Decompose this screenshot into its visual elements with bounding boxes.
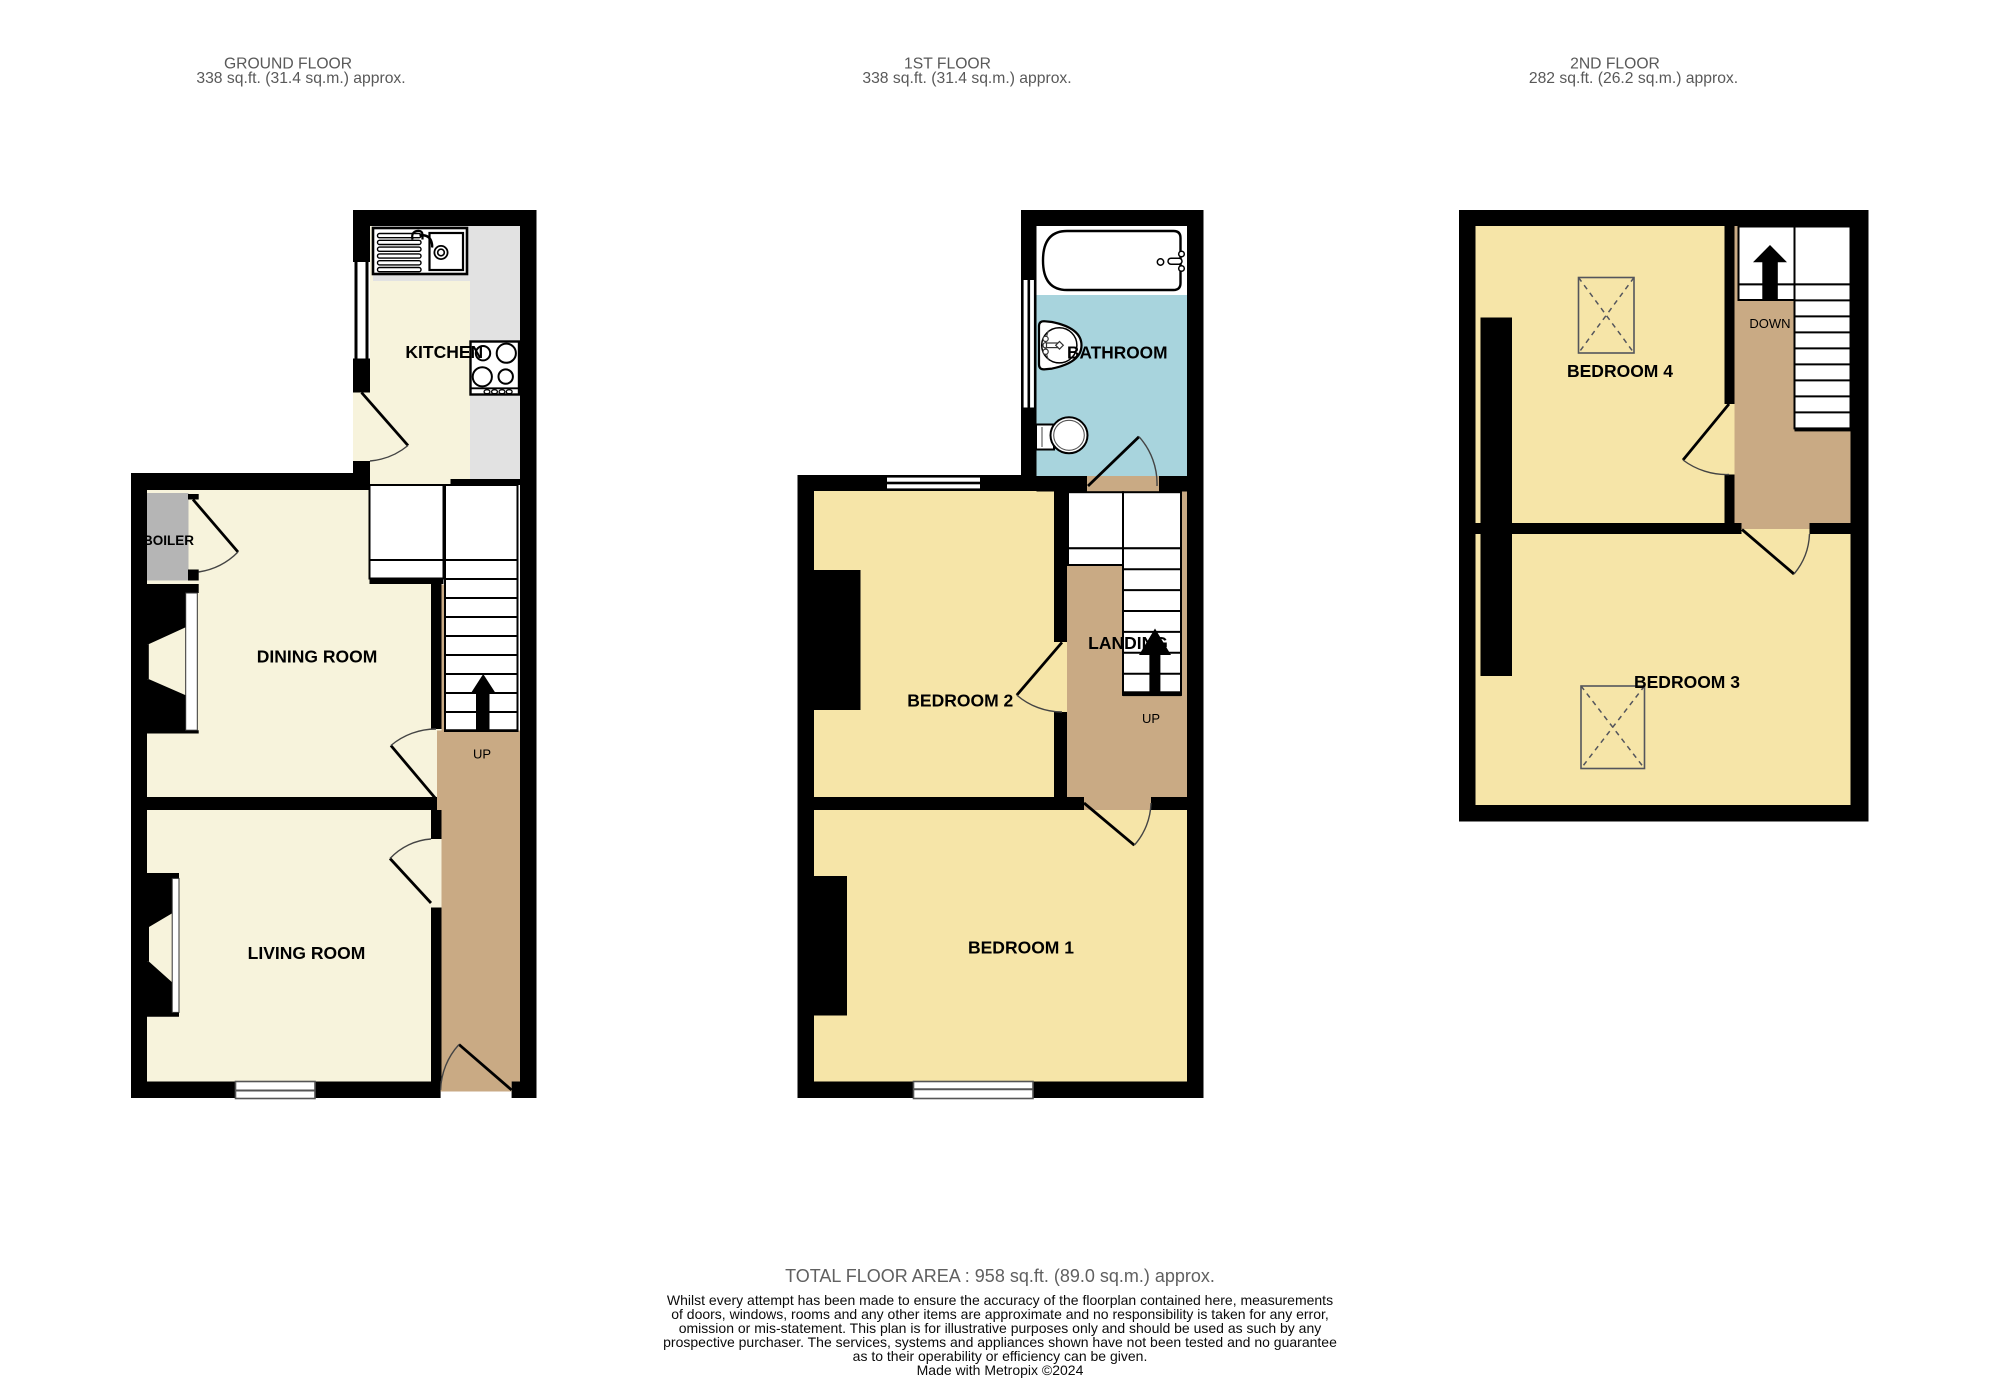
- svg-text:LIVING ROOM: LIVING ROOM: [248, 943, 366, 963]
- svg-text:282 sq.ft. (26.2 sq.m.) approx: 282 sq.ft. (26.2 sq.m.) approx.: [1529, 70, 1738, 87]
- svg-text:TOTAL FLOOR AREA : 958 sq.ft.: TOTAL FLOOR AREA : 958 sq.ft. (89.0 sq.m…: [785, 1266, 1215, 1286]
- svg-text:BEDROOM 3: BEDROOM 3: [1634, 672, 1740, 692]
- svg-text:UP: UP: [473, 747, 491, 762]
- svg-text:DOWN: DOWN: [1749, 316, 1790, 331]
- svg-text:BEDROOM 1: BEDROOM 1: [968, 938, 1074, 958]
- svg-text:338 sq.ft. (31.4 sq.m.) approx: 338 sq.ft. (31.4 sq.m.) approx.: [196, 70, 405, 87]
- svg-text:338 sq.ft. (31.4 sq.m.) approx: 338 sq.ft. (31.4 sq.m.) approx.: [862, 70, 1071, 87]
- svg-text:LANDING: LANDING: [1088, 633, 1168, 653]
- svg-text:UP: UP: [1142, 711, 1160, 726]
- svg-text:DINING ROOM: DINING ROOM: [257, 647, 378, 667]
- svg-text:BATHROOM: BATHROOM: [1067, 343, 1167, 363]
- svg-text:BEDROOM 2: BEDROOM 2: [907, 691, 1013, 711]
- svg-text:BOILER: BOILER: [143, 533, 194, 548]
- svg-text:BEDROOM 4: BEDROOM 4: [1567, 361, 1673, 381]
- svg-text:KITCHEN: KITCHEN: [405, 342, 483, 362]
- svg-text:Made with Metropix ©2024: Made with Metropix ©2024: [917, 1362, 1084, 1378]
